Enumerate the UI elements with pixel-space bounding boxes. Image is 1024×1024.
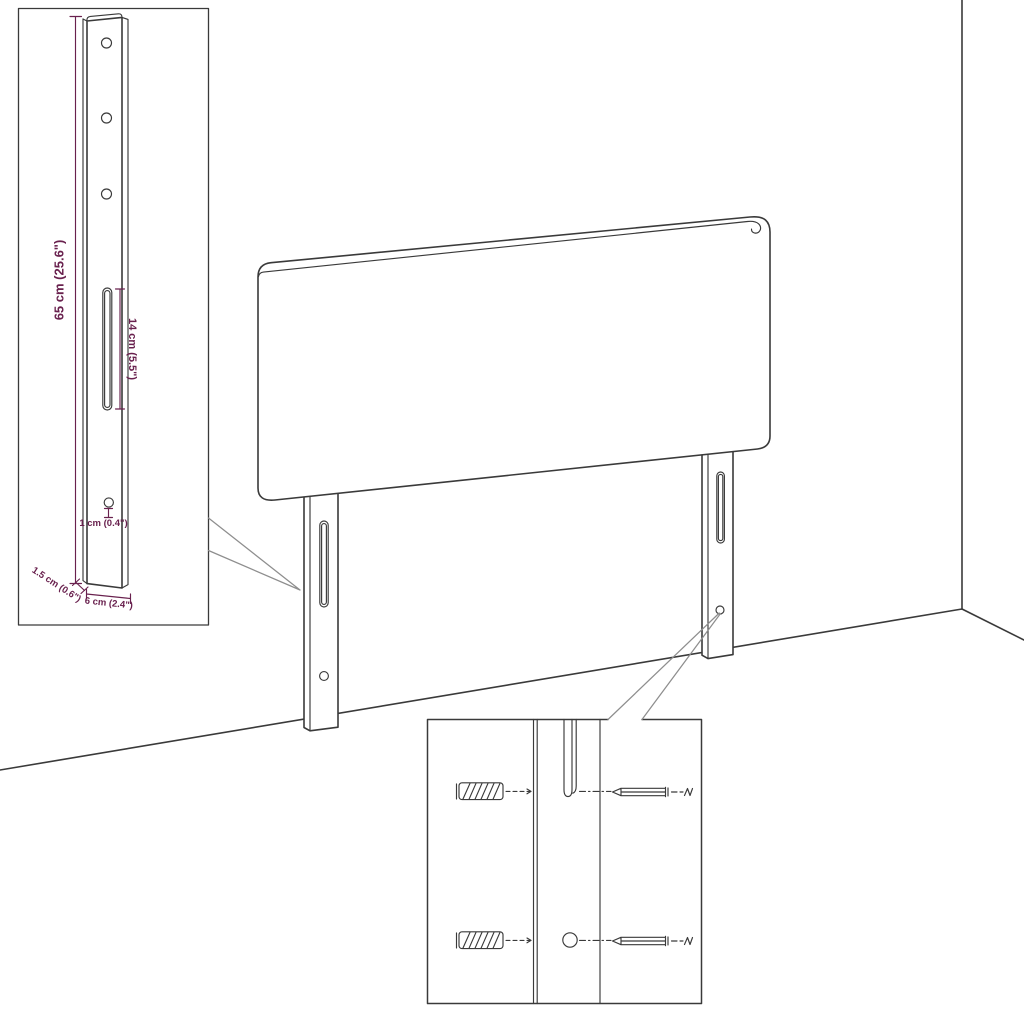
floor-wall-line-right (962, 609, 1024, 640)
dimension-label-height: 65 cm (25.6") (52, 240, 67, 321)
leg-detail-inset: 65 cm (25.6") 14 cm (5.5") 1 cm (0.4") 1… (19, 9, 209, 626)
leg-inset-callout-lines (209, 518, 301, 590)
diagram-canvas: 65 cm (25.6") 14 cm (5.5") 1 cm (0.4") 1… (0, 0, 1024, 1024)
left-leg (304, 480, 338, 731)
right-leg-board (702, 445, 733, 659)
dimension-label-hole-diameter: 1 cm (0.4") (79, 518, 127, 529)
headboard-diagram: 65 cm (25.6") 14 cm (5.5") 1 cm (0.4") 1… (0, 0, 1024, 1024)
dimension-label-slot-length: 14 cm (5.5") (126, 318, 138, 380)
right-leg (702, 445, 733, 659)
panel-outline (258, 217, 770, 500)
mounting-detail-inset (428, 720, 702, 1004)
headboard-panel (258, 217, 770, 500)
